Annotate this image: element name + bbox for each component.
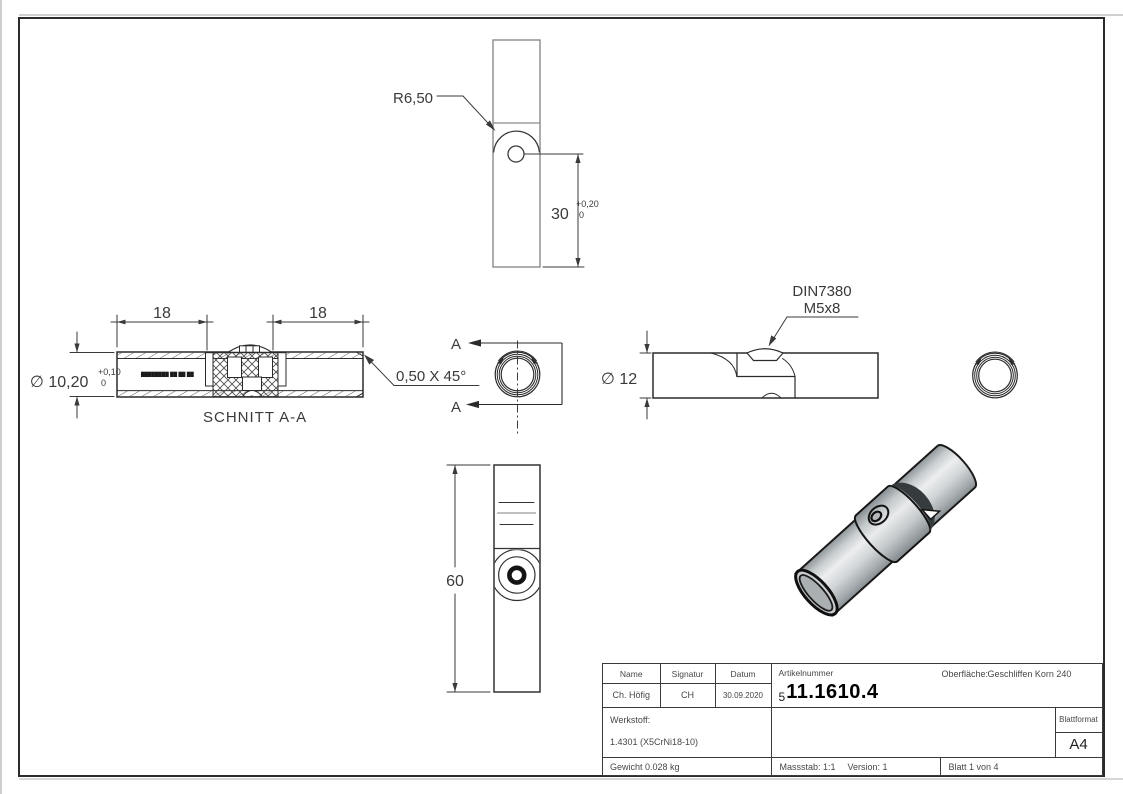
werkstoff-cell: Werkstoff: 1.4301 (X5CrNi18-10) — [603, 708, 772, 758]
side-view: DIN7380 M5x8 ∅ 12 — [601, 283, 878, 419]
section-letter-top: A — [451, 336, 461, 353]
dim-dia-12: ∅ 12 — [601, 371, 637, 388]
header-datum: Datum — [730, 669, 755, 679]
gewicht-cell: Gewicht 0.028 kg — [603, 758, 772, 776]
dim-30-tol-plus: +0,20 — [576, 199, 599, 209]
chamfer-label: 0,50 X 45° — [396, 368, 466, 385]
dim-18-right: 18 — [309, 305, 327, 322]
top-view: R6,50 30 +0,20 0 — [393, 40, 599, 267]
header-signatur-cell: Signatur — [661, 664, 716, 684]
section-title: SCHNITT A-A — [203, 409, 307, 426]
value-name-cell: Ch. Höfig — [603, 684, 661, 708]
artikel-number-main: 11.1610.4 — [786, 681, 878, 703]
header-signatur: Signatur — [672, 669, 704, 679]
title-block: Name Signatur Datum Artikelnummer Oberfl… — [602, 663, 1103, 776]
dim-dia-1020: ∅ 10,20 — [30, 374, 89, 391]
value-signatur: CH — [681, 690, 694, 700]
artikelnummer-cell: Artikelnummer Oberfläche: Geschliffen Ko… — [772, 664, 1102, 708]
artikel-number-prefix: 5 — [779, 690, 786, 704]
section-letter-bottom: A — [451, 399, 461, 416]
dim-60: 60 — [446, 573, 464, 590]
value-signatur-cell: CH — [661, 684, 716, 708]
gewicht-value: Gewicht 0.028 kg — [610, 762, 680, 772]
countersink-dome — [747, 349, 783, 353]
side-end-view — [973, 352, 1018, 398]
header-name-cell: Name — [603, 664, 661, 684]
value-name: Ch. Höfig — [612, 690, 650, 700]
blattformat-cell: Blattformat — [1056, 708, 1102, 733]
screw-note-line2: M5x8 — [804, 300, 841, 317]
radius-label: R6,50 — [393, 90, 433, 107]
werkstoff-value: 1.4301 (X5CrNi18-10) — [610, 737, 698, 747]
header-name: Name — [620, 669, 643, 679]
werkstoff-label: Werkstoff: — [610, 715, 650, 725]
oberflaeche-label: Oberfläche: — [942, 669, 989, 679]
section-view: ████████ ██ ██ ██ 18 18 ∅ 10,20 +0,10 0 … — [30, 305, 479, 426]
screw-note-line1: DIN7380 — [792, 283, 851, 300]
value-datum-cell: 30.09.2020 — [716, 684, 772, 708]
value-datum: 30.09.2020 — [723, 691, 763, 700]
version-value: Version: 1 — [848, 762, 888, 772]
blattformat-label: Blattformat — [1059, 715, 1098, 724]
dim-18-left: 18 — [153, 305, 171, 322]
empty-mid-cell — [772, 708, 1056, 758]
front-screw-hole — [509, 568, 524, 583]
dim-30-tol-zero: 0 — [579, 210, 584, 220]
header-datum-cell: Datum — [716, 664, 772, 684]
part-marking: ████████ ██ ██ ██ — [140, 371, 194, 378]
lug-hole — [508, 146, 524, 162]
dim-dia-1020-tol-plus: +0,10 — [98, 367, 121, 377]
oberflaeche-value: Geschliffen Korn 240 — [988, 669, 1072, 679]
format-cell: A4 — [1056, 733, 1102, 758]
countersink-notch — [747, 353, 783, 361]
massstab-cell: Massstab: 1:1 Version: 1 — [772, 758, 941, 776]
front-view: 60 — [446, 465, 542, 692]
drawing-sheet: R6,50 30 +0,20 0 ██ — [0, 0, 1123, 794]
format-value: A4 — [1069, 736, 1087, 753]
iso-3d-view — [787, 438, 983, 624]
dim-dia-1020-tol-zero: 0 — [101, 378, 106, 388]
blatt-value: Blatt 1 von 4 — [949, 762, 999, 772]
artikelnummer-label: Artikelnummer — [779, 668, 834, 678]
massstab-value: Massstab: 1:1 — [780, 762, 836, 772]
artikel-number: 511.1610.4 — [779, 681, 879, 704]
blatt-cell: Blatt 1 von 4 — [941, 758, 1102, 776]
dim-30: 30 — [551, 206, 569, 223]
radius-leader-line — [437, 96, 493, 129]
